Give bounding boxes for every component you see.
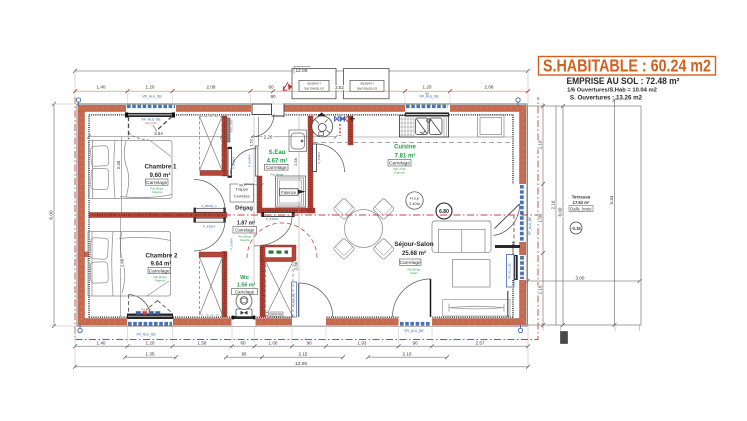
svg-text:Dalle_brute: Dalle_brute <box>570 206 592 211</box>
svg-text:LUMIERE: LUMIERE <box>360 81 374 85</box>
svg-text:1.20: 1.20 <box>423 84 432 89</box>
svg-text:2.08: 2.08 <box>485 84 494 89</box>
svg-text:Fajenza: Fajenza <box>240 238 250 242</box>
svg-text:EMPRISE AU SOL : 72.48 m²: EMPRISE AU SOL : 72.48 m² <box>567 76 680 86</box>
svg-text:Chambre 1: Chambre 1 <box>145 164 178 171</box>
svg-text:Fajenza: Fajenza <box>155 279 165 283</box>
svg-text:RAD_1000: RAD_1000 <box>230 119 234 132</box>
svg-text:P_ALU_BE: P_ALU_BE <box>292 293 296 307</box>
svg-text:1.52: 1.52 <box>249 138 254 147</box>
svg-text:P_83004: P_83004 <box>317 152 321 164</box>
svg-text:2.88: 2.88 <box>120 258 125 267</box>
svg-text:2.16: 2.16 <box>551 200 556 209</box>
svg-text:ARMOIRE: ARMOIRE <box>271 313 283 316</box>
svg-text:Carrelage: Carrelage <box>266 165 287 170</box>
svg-text:2.10: 2.10 <box>538 140 543 149</box>
svg-text:90: 90 <box>270 94 276 99</box>
svg-text:60: 60 <box>268 84 274 89</box>
svg-text:3.00: 3.00 <box>576 275 585 280</box>
svg-text:17.52 m²: 17.52 m² <box>573 200 590 205</box>
svg-text:1.93: 1.93 <box>358 340 367 345</box>
svg-text:Salon: Salon <box>410 271 418 275</box>
svg-text:Carrelage: Carrelage <box>149 269 170 275</box>
svg-text:60: 60 <box>240 340 246 345</box>
svg-text:Combles: Combles <box>234 194 250 199</box>
svg-text:S.Eau: S.Eau <box>269 150 286 156</box>
svg-text:Ral_7016: Ral_7016 <box>141 309 152 312</box>
svg-text:P_83004: P_83004 <box>266 217 278 221</box>
svg-text:5.34: 5.34 <box>609 195 614 204</box>
svg-text:1.20: 1.20 <box>146 84 155 89</box>
svg-text:9.60 m²: 9.60 m² <box>150 172 171 179</box>
svg-text:1.56 m²: 1.56 m² <box>237 283 256 289</box>
svg-text:7.81 m²: 7.81 m² <box>395 153 416 160</box>
svg-text:P_83004: P_83004 <box>203 225 215 229</box>
svg-text:VR_ALU_BE: VR_ALU_BE <box>141 118 161 122</box>
svg-text:6.00: 6.00 <box>558 207 563 216</box>
svg-text:2.57: 2.57 <box>476 340 485 345</box>
svg-text:2.10: 2.10 <box>403 352 412 357</box>
svg-text:3.54: 3.54 <box>154 131 163 136</box>
svg-text:Faïence: Faïence <box>281 190 297 195</box>
svg-text:Carrelage: Carrelage <box>235 289 255 294</box>
svg-text:Chambre 2: Chambre 2 <box>146 253 179 260</box>
svg-text:1.20: 1.20 <box>146 340 155 345</box>
svg-text:Carrelage: Carrelage <box>389 161 410 167</box>
svg-text:2.15: 2.15 <box>299 352 308 357</box>
svg-text:1.35: 1.35 <box>146 352 155 357</box>
svg-text:9.64 m²: 9.64 m² <box>151 261 172 268</box>
svg-text:H.s.p: H.s.p <box>410 196 420 201</box>
svg-text:Dégag: Dégag <box>235 206 253 212</box>
svg-text:1.80: 1.80 <box>538 213 543 222</box>
svg-text:90: 90 <box>239 183 243 187</box>
svg-text:90: 90 <box>412 340 418 345</box>
svg-text:VR_ALU_BE: VR_ALU_BE <box>419 95 439 99</box>
svg-text:LUMIERE: LUMIERE <box>307 81 321 85</box>
svg-text:2.40m: 2.40m <box>409 201 421 206</box>
svg-text:PF_ALU_BE: PF_ALU_BE <box>508 263 512 279</box>
svg-text:Wc: Wc <box>240 275 249 281</box>
svg-text:Ral_Beige: Ral_Beige <box>271 173 284 177</box>
svg-text:VR_ALU_BE: VR_ALU_BE <box>136 333 156 337</box>
svg-text:25.68 m²: 25.68 m² <box>402 250 426 257</box>
svg-text:Carrelage: Carrelage <box>146 180 167 186</box>
svg-text:Fajenza: Fajenza <box>395 171 405 175</box>
svg-text:95: 95 <box>241 352 247 357</box>
svg-text:1.40: 1.40 <box>97 340 106 345</box>
svg-text:-0.15: -0.15 <box>571 226 581 231</box>
svg-text:Fajenza: Fajenza <box>152 190 162 194</box>
svg-text:Carrelage: Carrelage <box>235 228 255 233</box>
svg-text:2.10: 2.10 <box>538 285 543 294</box>
svg-text:P_83004: P_83004 <box>230 238 234 250</box>
svg-text:Ral_7016: Ral_7016 <box>145 121 157 125</box>
svg-text:Séjour-Salon: Séjour-Salon <box>394 241 434 248</box>
svg-text:S.HABITABLE : 60.24 m2: S.HABITABLE : 60.24 m2 <box>543 56 711 76</box>
svg-text:2.20: 2.20 <box>264 134 273 139</box>
svg-text:12.08: 12.08 <box>295 361 307 367</box>
svg-text:2.80: 2.80 <box>294 261 299 270</box>
svg-text:1.00: 1.00 <box>269 340 278 345</box>
svg-text:6.80: 6.80 <box>439 209 449 215</box>
svg-text:6.00: 6.00 <box>49 210 55 220</box>
svg-text:VR_ALU_BE: VR_ALU_BE <box>142 95 162 99</box>
svg-text:PF_ALU_BE: PF_ALU_BE <box>528 217 532 235</box>
svg-text:P_83004_u: P_83004_u <box>201 204 217 208</box>
svg-text:1.58: 1.58 <box>198 340 207 345</box>
svg-text:Carrelage: Carrelage <box>400 260 421 266</box>
svg-text:12.08: 12.08 <box>295 68 307 74</box>
svg-text:EXTERIEURE: EXTERIEURE <box>304 87 324 91</box>
svg-text:1.87 m²: 1.87 m² <box>237 221 256 227</box>
svg-text:90: 90 <box>425 92 429 96</box>
svg-text:VR_ALU_BE: VR_ALU_BE <box>404 329 424 333</box>
svg-text:Cuisine: Cuisine <box>394 145 416 151</box>
svg-text:1.40: 1.40 <box>97 84 106 89</box>
svg-text:S. Ouvertures : 13.26 m2: S. Ouvertures : 13.26 m2 <box>570 95 643 102</box>
svg-text:4.67 m²: 4.67 m² <box>267 158 288 165</box>
svg-text:2.58: 2.58 <box>293 157 298 166</box>
svg-text:2.45: 2.45 <box>116 160 121 169</box>
svg-text:EXTERIEURE: EXTERIEURE <box>357 87 377 91</box>
svg-text:P_83004: P_83004 <box>248 155 252 167</box>
svg-text:2.08: 2.08 <box>207 84 216 89</box>
svg-text:Terrasse: Terrasse <box>572 195 591 200</box>
svg-text:90: 90 <box>306 340 312 345</box>
svg-text:1/6 Ouvertures/S.Hab = 10.04 m: 1/6 Ouvertures/S.Hab = 10.04 m2 <box>567 88 657 94</box>
svg-text:3.52: 3.52 <box>335 85 344 90</box>
